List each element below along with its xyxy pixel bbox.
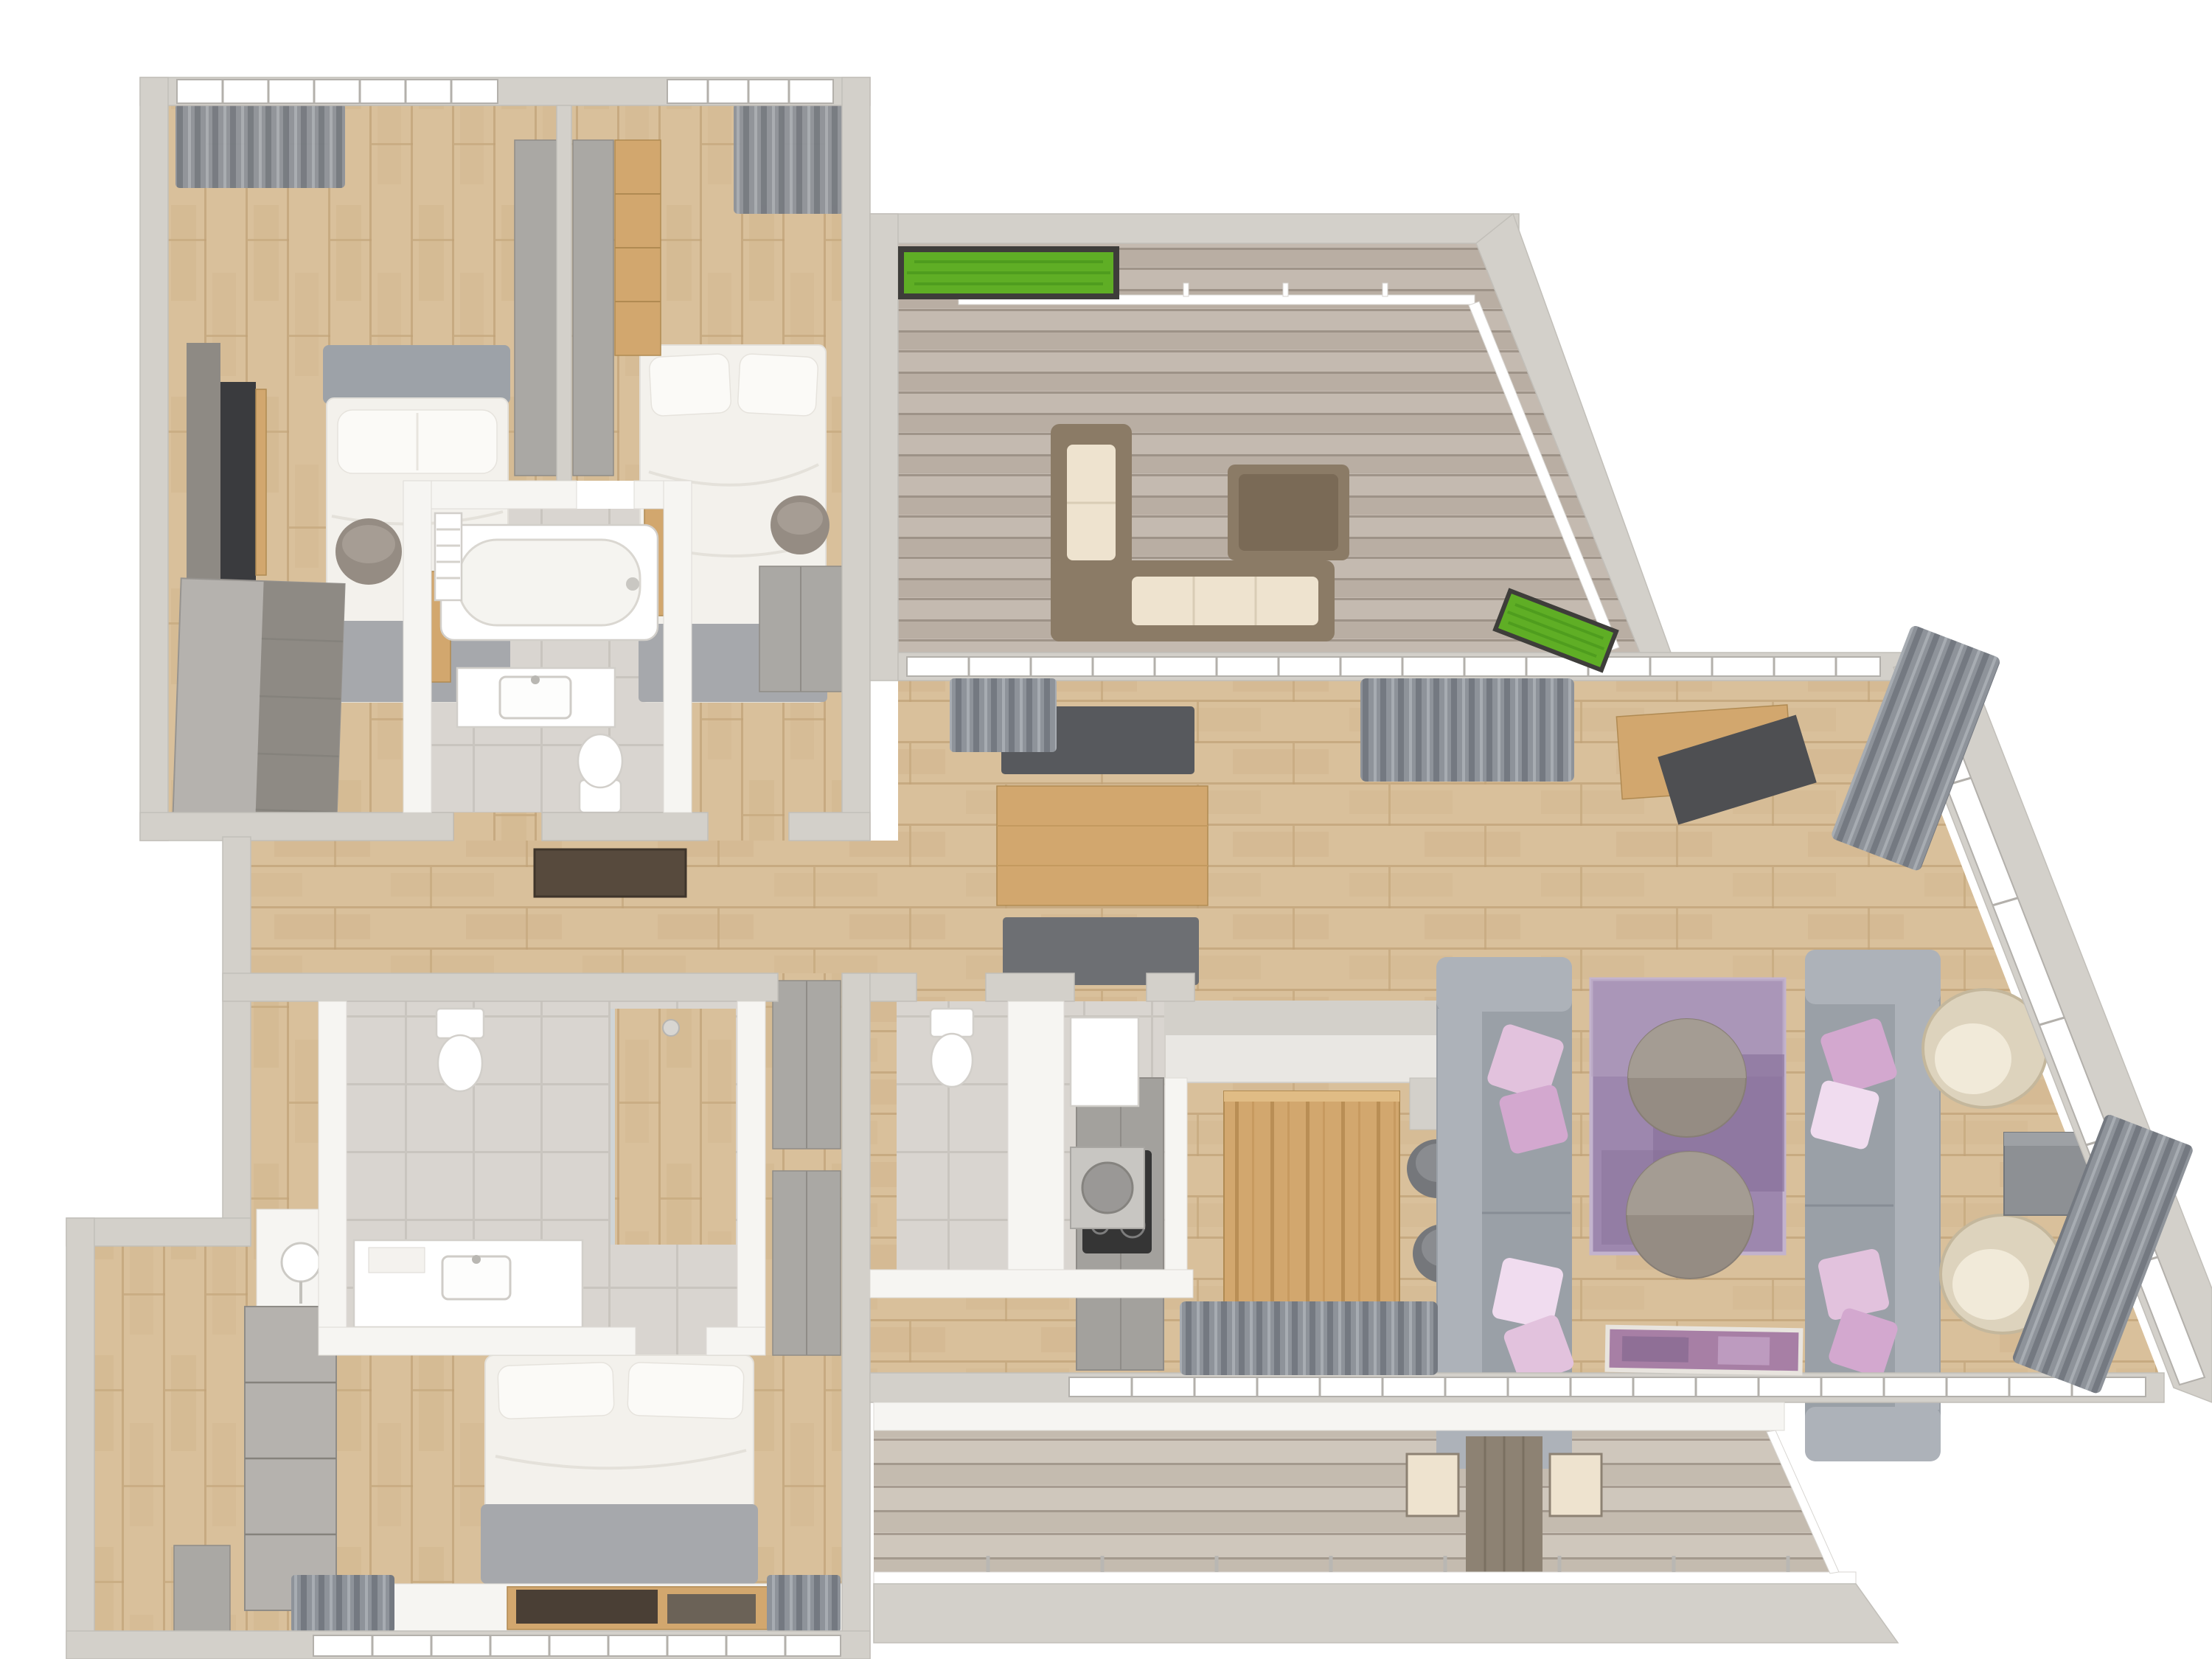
- window-master-bedroom: [313, 1635, 841, 1656]
- round-coffee-table: [1627, 1152, 1753, 1279]
- ensuite-shower-wood-floor: [613, 1009, 736, 1245]
- partition: [403, 481, 431, 813]
- window-living-north: [907, 657, 1880, 676]
- wall: [789, 813, 870, 841]
- vanity-sink: [354, 1240, 582, 1327]
- built-in-wardrobe: [515, 140, 557, 476]
- dining-table: [997, 786, 1208, 905]
- floor-plan-render: [0, 0, 2212, 1659]
- room-wc: [931, 1009, 973, 1087]
- vanity-sink: [457, 668, 615, 727]
- curtain: [1360, 678, 1574, 782]
- built-in-wardrobe: [573, 140, 613, 476]
- wall: [140, 813, 453, 841]
- door-opening: [453, 813, 542, 841]
- wall: [870, 973, 917, 1001]
- wall: [870, 214, 898, 681]
- partition: [319, 1327, 636, 1355]
- partition: [1008, 1001, 1064, 1270]
- curtain: [950, 678, 1057, 752]
- wall-divider: [557, 105, 571, 481]
- wall: [1147, 973, 1194, 1001]
- wall: [140, 77, 168, 841]
- wall: [842, 973, 870, 1659]
- foot-throw: [481, 1504, 758, 1584]
- wall: [842, 77, 870, 841]
- pillow: [627, 1362, 744, 1419]
- hallway: [535, 849, 686, 897]
- pillow: [498, 1362, 614, 1419]
- bed-double: [481, 1355, 758, 1584]
- towel-stack: [369, 1248, 425, 1273]
- boiler-cabinet: [1071, 1018, 1138, 1106]
- tub-faucet: [626, 577, 639, 591]
- tv-backing-panel: [187, 343, 220, 616]
- balcony-threshold: [874, 1402, 1784, 1430]
- wall: [870, 214, 1519, 243]
- toilet-tank: [931, 1009, 973, 1037]
- partition: [1165, 1078, 1187, 1270]
- bathtub: [441, 525, 658, 640]
- outdoor-chair: [1407, 1454, 1458, 1516]
- window-bedroom-2: [667, 80, 833, 103]
- floor-plan-canvas: [0, 0, 2212, 1659]
- faucet: [531, 675, 540, 684]
- dresser: [173, 578, 344, 829]
- window-living-south: [1069, 1377, 2146, 1397]
- toilet-bowl: [931, 1034, 973, 1087]
- faucet: [472, 1255, 481, 1264]
- round-coffee-table: [1628, 1019, 1746, 1137]
- curtain: [291, 1575, 394, 1632]
- wall: [66, 1218, 94, 1659]
- partition: [319, 1001, 347, 1355]
- pillow: [649, 353, 731, 417]
- door-opening: [917, 973, 986, 1001]
- books: [667, 1594, 756, 1624]
- wall: [986, 973, 1074, 1001]
- outdoor-chair: [1550, 1454, 1601, 1516]
- wall: [223, 837, 251, 1246]
- books: [516, 1590, 658, 1624]
- doormat: [535, 849, 686, 897]
- partition: [737, 1001, 765, 1355]
- curtain: [767, 1575, 841, 1632]
- wall: [223, 973, 778, 1001]
- balcony-deck: [874, 1430, 1832, 1574]
- curtain: [175, 103, 345, 188]
- door-opening: [708, 813, 789, 841]
- curtain: [1180, 1301, 1438, 1375]
- headboard: [323, 345, 510, 404]
- grass-planter-top: [898, 246, 1119, 299]
- door-opening: [636, 1327, 706, 1355]
- wall-tv: [220, 382, 256, 582]
- pillow: [737, 353, 818, 416]
- window-bedroom-1: [177, 80, 498, 103]
- artwork-leaning: [1607, 1327, 1801, 1374]
- toilet: [437, 1009, 484, 1091]
- balcony-outer-band: [874, 1584, 1898, 1643]
- towel-radiator: [435, 513, 462, 600]
- wall: [542, 813, 708, 841]
- curtain: [734, 103, 844, 214]
- wicker-coffee-table: [1228, 465, 1349, 560]
- tv-frame: [256, 389, 266, 575]
- toilet: [578, 734, 622, 813]
- partition: [664, 481, 692, 813]
- partition: [706, 1327, 765, 1355]
- partition: [870, 1270, 1193, 1298]
